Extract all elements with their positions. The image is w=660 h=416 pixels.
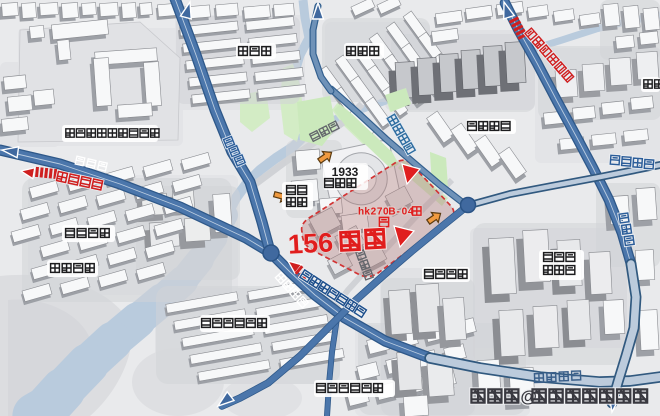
svg-text:k: k xyxy=(364,207,370,218)
svg-text:0: 0 xyxy=(402,207,408,218)
svg-text:1933: 1933 xyxy=(332,165,359,179)
svg-text:2: 2 xyxy=(371,207,377,218)
svg-text:h: h xyxy=(358,207,364,218)
svg-text:-: - xyxy=(397,207,400,218)
svg-text:156: 156 xyxy=(287,227,334,259)
